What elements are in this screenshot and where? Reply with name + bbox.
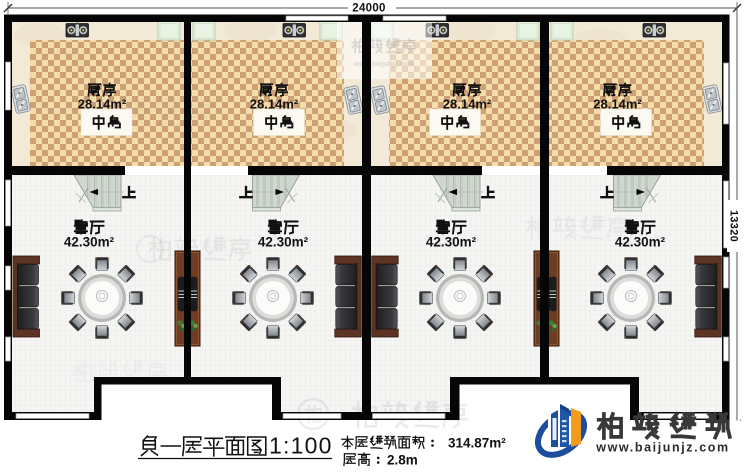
svg-text:1:100: 1:100 xyxy=(269,433,333,459)
svg-text:42.30m²: 42.30m² xyxy=(258,235,309,250)
svg-text:42.30m²: 42.30m² xyxy=(64,235,115,250)
svg-text:42.30m²: 42.30m² xyxy=(426,235,477,250)
svg-text:www.baijunjz.com: www.baijunjz.com xyxy=(595,441,729,455)
svg-text:42.30m²: 42.30m² xyxy=(615,235,666,250)
svg-text:24000: 24000 xyxy=(352,3,385,15)
svg-text:13320: 13320 xyxy=(728,210,740,242)
svg-text:2.8m: 2.8m xyxy=(387,453,418,468)
svg-text:314.87m²: 314.87m² xyxy=(448,436,506,451)
